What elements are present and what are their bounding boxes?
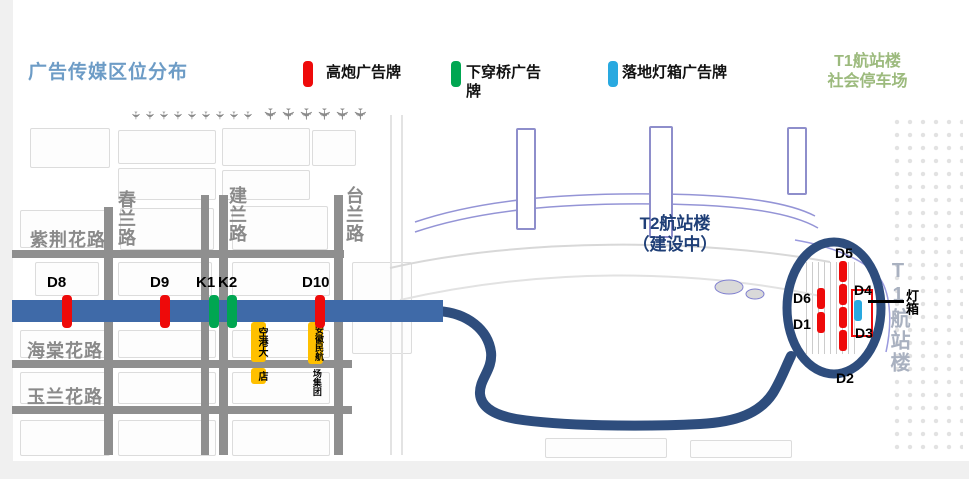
marker-label-d9: D9 [150, 274, 169, 291]
marker-label-d5: D5 [835, 245, 853, 261]
legend-swatch-billboard [303, 61, 313, 87]
t2-pier [787, 127, 807, 195]
lake [746, 289, 764, 299]
lightbox-label: 灯箱 [902, 289, 921, 329]
marker-label-d8: D8 [47, 274, 66, 291]
marker-label-d3: D3 [855, 325, 873, 341]
marker-label-d6: D6 [793, 290, 811, 306]
marker-label-k2: K2 [218, 274, 237, 291]
road-label-yulanhua: 玉兰花路 [27, 383, 103, 409]
lightbox-pointer-line [868, 300, 904, 303]
page-title: 广告传媒区位分布 [28, 57, 188, 84]
marker-label-d4: D4 [854, 282, 872, 298]
legend-label-lightbox: 落地灯箱广告牌 [622, 63, 727, 82]
t2-terminal-label-line2: （建设中） [600, 234, 750, 255]
t2-terminal-label-line1: T2航站楼 [600, 213, 750, 234]
slide-canvas: ✈✈✈✈✈✈✈✈✈✈✈✈✈✈✈ 空港大 店 安徽民航 场集团 D8 D9 K1 … [0, 0, 969, 479]
poi-airport-group-label-bottom: 场集团 [311, 369, 321, 403]
poi-airport-hotel-label: 空港大 [251, 322, 266, 362]
marker-label-d2: D2 [836, 370, 854, 386]
legend-label-underpass: 下穿桥广告牌 [466, 63, 546, 101]
legend-swatch-lightbox [608, 61, 618, 87]
road-label-jianlan: 建兰路 [224, 186, 250, 243]
marker-d10 [315, 295, 325, 328]
marker-red-bar [839, 284, 847, 305]
marker-label-k1: K1 [196, 274, 215, 291]
marker-d6 [817, 288, 825, 309]
poi-airport-hotel-label-bottom: 店 [251, 368, 266, 384]
legend-label-billboard: 高炮广告牌 [326, 63, 401, 82]
road-label-tailan: 台兰路 [341, 186, 367, 243]
marker-lightbox [854, 300, 862, 321]
marker-d1 [817, 312, 825, 333]
marker-red-bar [839, 307, 847, 328]
marker-d5 [839, 261, 847, 282]
marker-label-d1: D1 [793, 316, 811, 332]
road-label-haitanghua: 海棠花路 [27, 337, 103, 363]
road-label-zijinhua: 紫荆花路 [30, 226, 106, 252]
parking-note-line2: 社会停车场 [795, 72, 940, 92]
parking-note: T1航站楼 社会停车场 [795, 52, 940, 92]
marker-k2 [227, 295, 237, 328]
marker-label-d10: D10 [302, 274, 330, 291]
t2-pier [516, 128, 536, 230]
marker-d9 [160, 295, 170, 328]
marker-k1 [209, 295, 219, 328]
legend-swatch-underpass [451, 61, 461, 87]
t2-terminal-label: T2航站楼 （建设中） [600, 213, 750, 255]
road-label-chunlan: 春兰路 [113, 190, 139, 247]
parking-note-line1: T1航站楼 [795, 52, 940, 72]
marker-d2 [839, 330, 847, 351]
marker-d8 [62, 295, 72, 328]
lake [715, 280, 743, 294]
airport-loop-road [438, 311, 791, 426]
poi-airport-group-label: 安徽民航 [308, 322, 323, 364]
